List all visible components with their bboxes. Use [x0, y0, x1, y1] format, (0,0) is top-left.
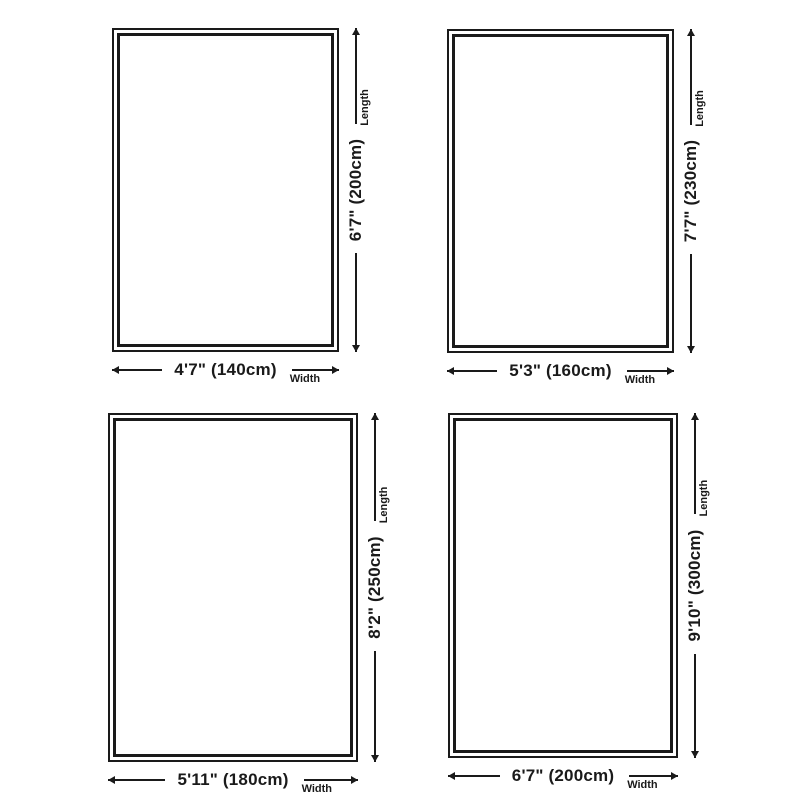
right-arrow-icon	[304, 779, 358, 781]
width-value: 6'7" (200cm)	[512, 766, 614, 786]
down-arrow-icon	[374, 651, 376, 762]
width-caption: Width	[627, 779, 657, 791]
rug-inner-border	[117, 33, 334, 347]
length-dimension-tail: Length	[681, 29, 706, 128]
rug-inner-border	[113, 418, 353, 757]
length-value: 9'10" (300cm)	[685, 529, 705, 641]
up-arrow-icon	[355, 28, 357, 124]
up-arrow-icon	[690, 29, 692, 125]
left-arrow-icon	[108, 779, 165, 781]
length-value: 7'7" (230cm)	[681, 140, 701, 242]
width-dimension-tail: Width	[626, 766, 678, 791]
rug-size-chart: 6'7" (200cm) Length 4'7" (140cm) Width 7…	[0, 0, 800, 800]
width-dimension: 5'11" (180cm) Width	[108, 770, 358, 800]
left-arrow-icon	[448, 775, 500, 777]
rug-outline	[448, 413, 678, 758]
up-arrow-icon	[694, 413, 696, 514]
width-value: 5'3" (160cm)	[509, 361, 611, 381]
length-caption: Length	[694, 90, 706, 127]
length-value: 8'2" (250cm)	[365, 536, 385, 638]
length-dimension: 6'7" (200cm) Length	[346, 28, 386, 352]
width-dimension-tail: Width	[289, 360, 339, 385]
width-caption: Width	[290, 373, 320, 385]
up-arrow-icon	[374, 413, 376, 521]
width-value: 5'11" (180cm)	[177, 770, 288, 790]
left-arrow-icon	[112, 369, 162, 371]
length-dimension-tail: Length	[685, 413, 710, 517]
width-dimension: 5'3" (160cm) Width	[447, 361, 674, 401]
rug-outline	[112, 28, 339, 352]
length-value: 6'7" (200cm)	[346, 139, 366, 241]
right-arrow-icon	[629, 775, 678, 777]
down-arrow-icon	[694, 654, 696, 758]
width-value: 4'7" (140cm)	[174, 360, 276, 380]
length-caption: Length	[378, 487, 390, 524]
width-dimension-tail: Width	[624, 361, 674, 386]
width-caption: Width	[302, 783, 332, 795]
right-arrow-icon	[627, 370, 674, 372]
length-dimension-tail: Length	[365, 413, 390, 524]
rug-inner-border	[453, 418, 673, 753]
down-arrow-icon	[355, 253, 357, 352]
right-arrow-icon	[292, 369, 339, 371]
length-caption: Length	[359, 89, 371, 126]
width-dimension-tail: Width	[301, 770, 358, 795]
width-dimension: 6'7" (200cm) Width	[448, 766, 678, 800]
length-dimension-tail: Length	[346, 28, 371, 127]
width-dimension: 4'7" (140cm) Width	[112, 360, 339, 400]
left-arrow-icon	[447, 370, 497, 372]
rug-outline	[447, 29, 674, 353]
length-caption: Length	[698, 480, 710, 517]
rug-inner-border	[452, 34, 669, 348]
length-dimension: 9'10" (300cm) Length	[685, 413, 725, 758]
length-dimension: 8'2" (250cm) Length	[365, 413, 405, 762]
width-caption: Width	[625, 374, 655, 386]
rug-outline	[108, 413, 358, 762]
down-arrow-icon	[690, 254, 692, 353]
length-dimension: 7'7" (230cm) Length	[681, 29, 721, 353]
